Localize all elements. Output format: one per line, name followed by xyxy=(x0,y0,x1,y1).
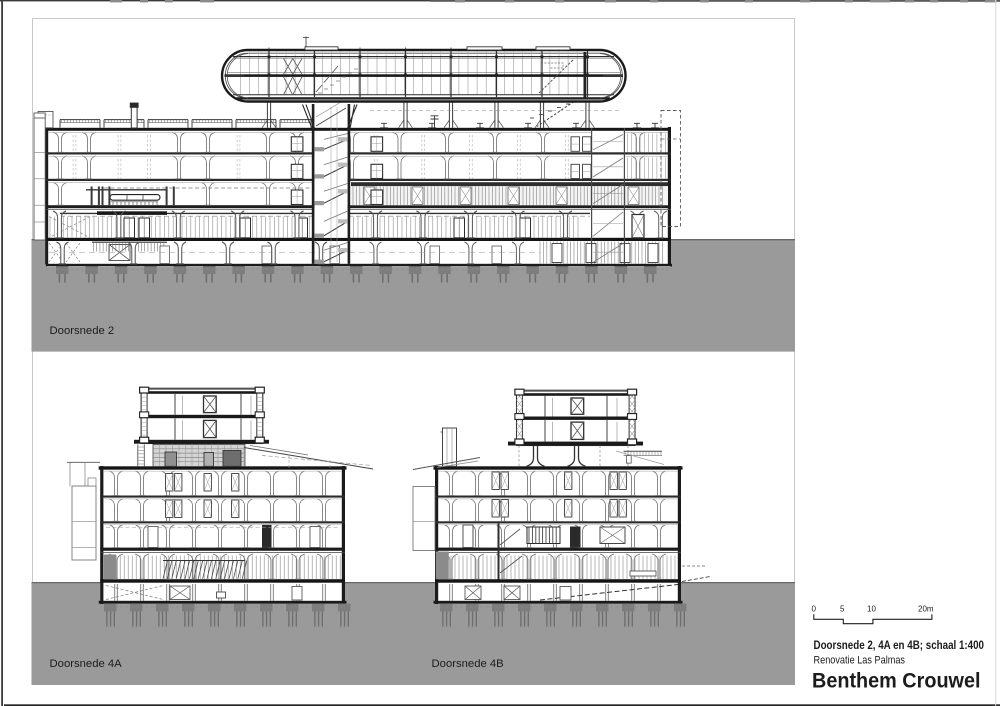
svg-text:0: 0 xyxy=(812,605,817,614)
svg-text:Doorsnede 4B: Doorsnede 4B xyxy=(432,658,504,670)
svg-text:5: 5 xyxy=(840,605,845,614)
svg-text:10: 10 xyxy=(867,605,876,614)
svg-text:Renovatie Las Palmas: Renovatie Las Palmas xyxy=(814,655,906,667)
svg-text:Doorsnede 2: Doorsnede 2 xyxy=(50,325,115,337)
svg-text:Benthem Crouwel: Benthem Crouwel xyxy=(812,670,981,693)
svg-text:Doorsnede 4A: Doorsnede 4A xyxy=(50,658,123,670)
svg-text:20m: 20m xyxy=(918,605,934,614)
svg-text:Doorsnede 2, 4A en 4B; schaal: Doorsnede 2, 4A en 4B; schaal 1:400 xyxy=(814,638,985,652)
